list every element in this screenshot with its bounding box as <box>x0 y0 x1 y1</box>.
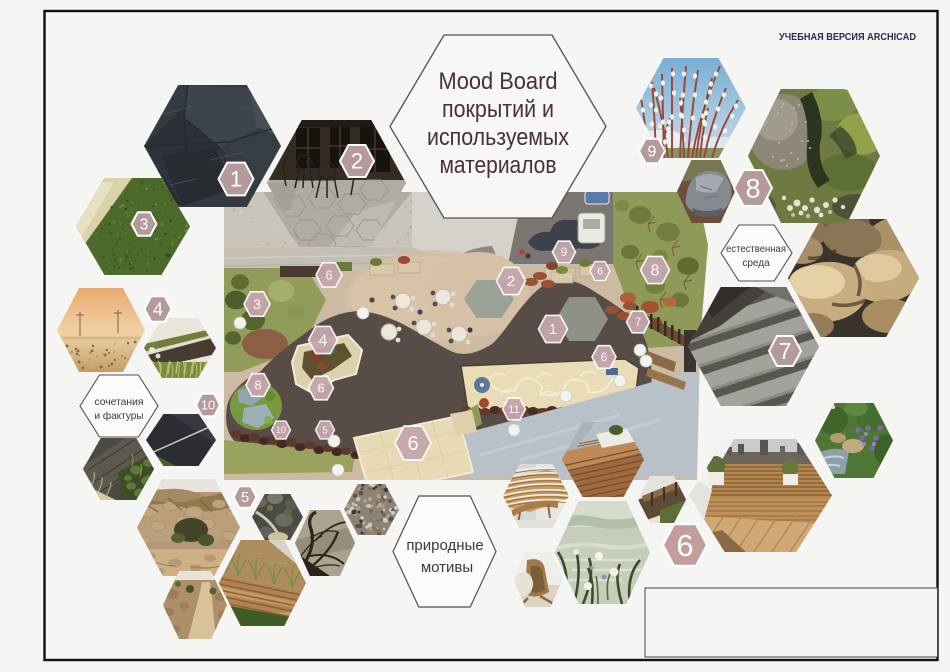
svg-text:11: 11 <box>508 404 519 416</box>
svg-text:10: 10 <box>276 425 286 435</box>
svg-text:сочетания: сочетания <box>95 396 144 408</box>
svg-text:9: 9 <box>648 144 657 161</box>
svg-text:материалов: материалов <box>440 152 557 179</box>
svg-text:6: 6 <box>601 350 608 364</box>
svg-text:5: 5 <box>241 489 249 506</box>
svg-text:1: 1 <box>549 321 557 338</box>
svg-text:3: 3 <box>140 217 149 234</box>
svg-text:Mood Board: Mood Board <box>439 68 558 95</box>
svg-text:используемых: используемых <box>427 124 569 151</box>
svg-text:среда: среда <box>742 258 770 269</box>
svg-text:3: 3 <box>253 296 261 312</box>
svg-text:2: 2 <box>351 149 363 174</box>
svg-text:8: 8 <box>745 173 760 203</box>
svg-text:покрытий и: покрытий и <box>442 96 554 123</box>
svg-text:2: 2 <box>507 273 515 290</box>
svg-text:мотивы: мотивы <box>421 559 473 576</box>
svg-text:7: 7 <box>635 315 642 329</box>
svg-text:6: 6 <box>325 268 332 283</box>
svg-text:6: 6 <box>317 381 324 396</box>
svg-text:4: 4 <box>153 299 163 319</box>
svg-text:6: 6 <box>407 433 418 455</box>
svg-text:8: 8 <box>254 378 261 393</box>
svg-text:9: 9 <box>561 245 568 259</box>
svg-text:естественная: естественная <box>726 244 786 255</box>
svg-text:и фактуры: и фактуры <box>95 410 144 422</box>
svg-text:4: 4 <box>319 333 328 350</box>
svg-text:7: 7 <box>779 338 792 364</box>
svg-text:10: 10 <box>201 398 215 413</box>
svg-text:УЧЕБНАЯ ВЕРСИЯ ARCHICAD: УЧЕБНАЯ ВЕРСИЯ ARCHICAD <box>779 32 916 43</box>
svg-text:8: 8 <box>651 263 660 280</box>
svg-text:5: 5 <box>322 426 328 437</box>
svg-text:6: 6 <box>597 267 603 278</box>
svg-text:6: 6 <box>676 528 693 563</box>
svg-text:1: 1 <box>230 167 242 192</box>
svg-text:природные: природные <box>406 537 483 554</box>
